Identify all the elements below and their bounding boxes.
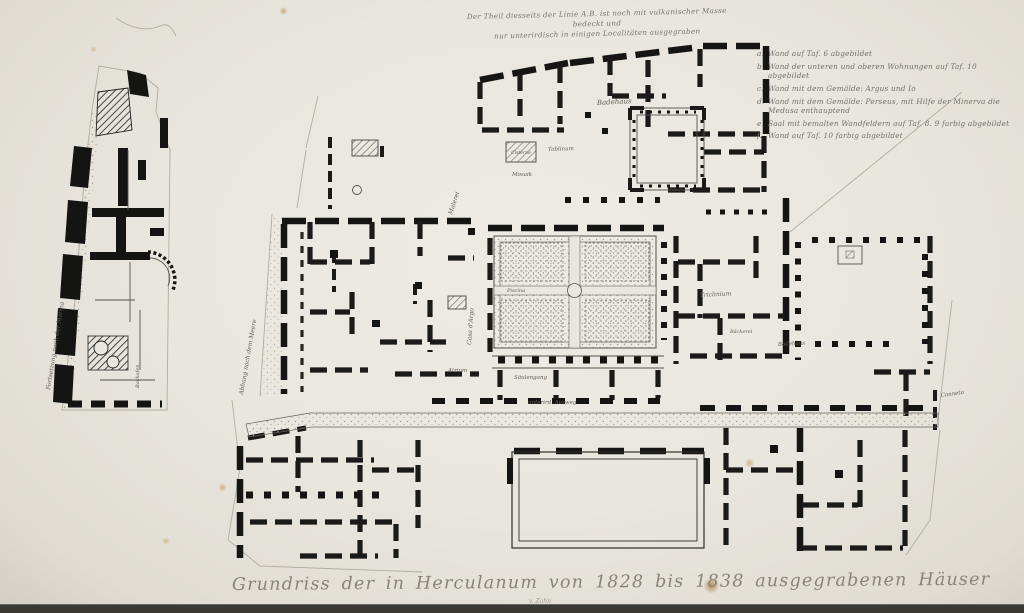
pencil-scribble [116, 18, 176, 36]
left-plan: Fortsetzung nach der Marina Backofen [45, 66, 175, 410]
right-colonnade [812, 240, 925, 344]
peristyle-outer [630, 108, 704, 190]
legend-text: Wand mit dem Gemälde: Argus und Io [768, 84, 1017, 94]
plate-title: Grundriss der in Herculanum von 1828 bis… [232, 571, 807, 595]
garden-bed [501, 243, 563, 281]
label-mosaik: Mosaik [511, 172, 533, 178]
label-badehaus-right: Badehaus [777, 341, 806, 348]
hatched-basin [352, 140, 378, 156]
peristyle-court [630, 108, 704, 190]
legend-text: Wand auf Taf. 10 farbig abgebildet [768, 131, 1017, 141]
legend-item: f. Wand auf Taf. 10 farbig abgebildet [757, 131, 1017, 141]
legend-key: c. [757, 84, 768, 94]
legend-key: f. [757, 131, 768, 141]
formal-garden [492, 236, 664, 368]
label-casa-argo: Casa d'Argo [466, 307, 476, 345]
plate-credit: v. Zahn [470, 598, 610, 605]
label-abhang: Abhang nach dem Meere [238, 318, 258, 396]
legend-item: d. Wand mit dem Gemälde: Perseus, mit Hi… [757, 97, 1017, 116]
legend-text: Wand der unteren und oberen Wohnungen au… [768, 62, 1017, 81]
label-ausweg: unterird. Ausweg [528, 400, 577, 406]
label-saeulengang: Säulengang [514, 375, 547, 381]
legend-key: b. [757, 62, 768, 81]
legend-text: Saal mit bemalten Wandfeldern auf Taf. 8… [768, 119, 1017, 129]
garden-bed [585, 243, 649, 281]
legend: a. Wand auf Taf. 6 abgebildet b. Wand de… [757, 49, 1017, 144]
label-baeckerei: Bäckerei [729, 329, 753, 335]
garden-bed [501, 300, 563, 342]
hatched-wall [96, 88, 132, 136]
great-court-inner [519, 459, 697, 541]
scan-edge-bar [0, 605, 1024, 613]
garden-bed [585, 300, 649, 342]
label-atrium: Atrium [447, 368, 467, 374]
great-court-jambs [507, 458, 710, 484]
peristyle-columns [634, 112, 702, 186]
label-backofen: Backofen [135, 364, 141, 389]
label-cisterne: Cisterne [511, 150, 531, 156]
label-tablinum: Tablinum [548, 146, 574, 153]
engraved-plan-sheet: Der Theil diesseits der Linie A.B. ist n… [0, 0, 1024, 613]
legend-item: a. Wand auf Taf. 6 abgebildet [757, 49, 1017, 59]
well-circle [353, 186, 362, 195]
small-court-basin [846, 251, 854, 258]
oven-pot [107, 356, 119, 368]
oven-pot [94, 341, 108, 355]
legend-item: b. Wand der unteren und oberen Wohnungen… [757, 62, 1017, 81]
great-court-outer [512, 452, 704, 548]
label-canneto: Canneto [940, 390, 965, 399]
peristyle-corners [630, 108, 704, 190]
legend-text: Wand mit dem Gemälde: Perseus, mit Hilfe… [768, 97, 1017, 116]
legend-item: e. Saal mit bemalten Wandfeldern auf Taf… [757, 119, 1017, 129]
label-triclinium: Triclinium [700, 290, 732, 299]
sunken-corridor [246, 413, 938, 437]
slope-embankment [260, 214, 284, 396]
impluvium [448, 296, 466, 309]
label-malerei: Malerei [447, 191, 461, 217]
legend-item: c. Wand mit dem Gemälde: Argus und Io [757, 84, 1017, 94]
legend-key: e. [757, 119, 768, 129]
legend-key: a. [757, 49, 768, 59]
legend-key: d. [757, 97, 768, 116]
label-piscina: Piscina [506, 288, 525, 294]
garden-fountain [568, 284, 582, 298]
legend-text: Wand auf Taf. 6 abgebildet [768, 49, 1017, 59]
label-badehaus-top: Badehaus [596, 97, 633, 107]
